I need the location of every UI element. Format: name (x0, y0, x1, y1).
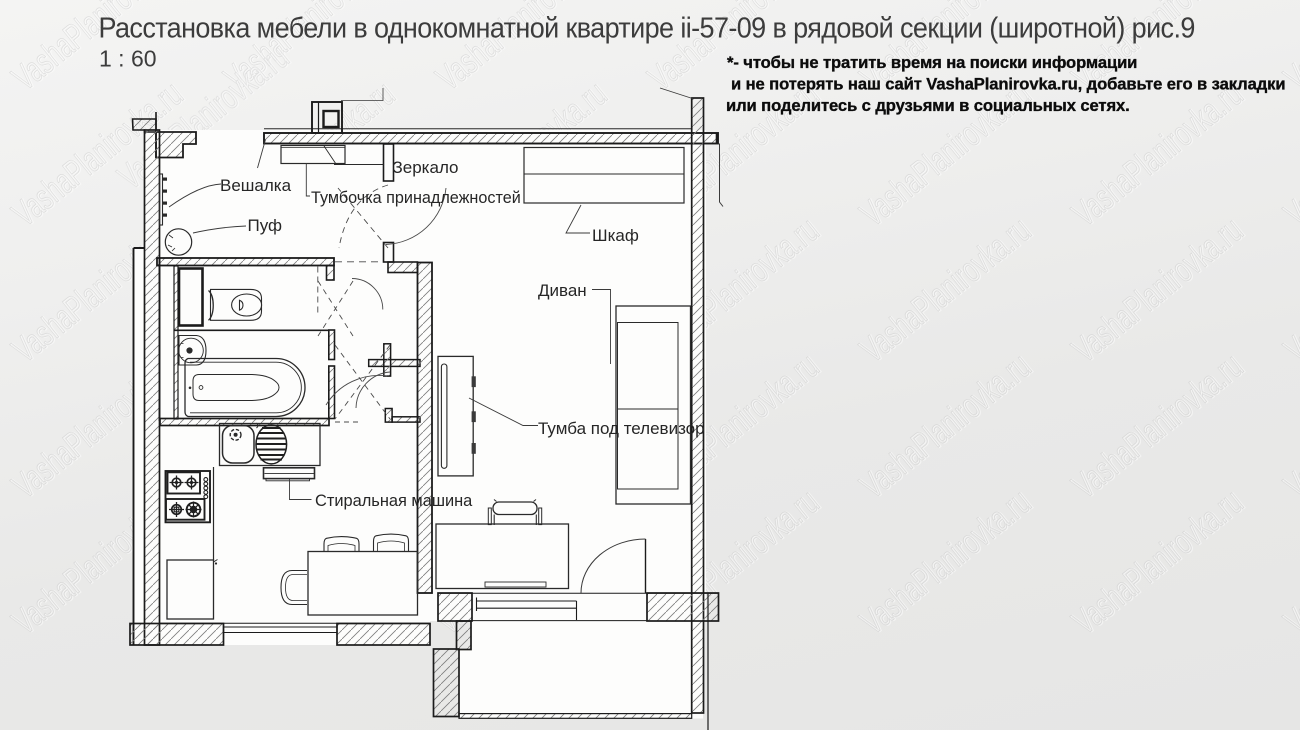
svg-text:Пуф: Пуф (248, 216, 283, 235)
svg-text:Шкаф: Шкаф (592, 226, 639, 245)
svg-text:Расстановка мебели в однокомна: Расстановка мебели в однокомнатной кварт… (99, 12, 1195, 44)
svg-text:или поделитесь с друзьями в со: или поделитесь с друзьями в социальных с… (726, 96, 1130, 115)
svg-text:Диван: Диван (538, 281, 587, 300)
svg-text:Тумба под телевизор: Тумба под телевизор (538, 419, 705, 438)
svg-text:и не потерять наш сайт VashaPl: и не потерять наш сайт VashaPlanirovka.r… (731, 75, 1285, 94)
svg-text:Зеркало: Зеркало (393, 158, 459, 177)
svg-text:Вешалка: Вешалка (220, 176, 292, 195)
svg-text:Стиральная машина: Стиральная машина (315, 492, 473, 510)
svg-text:Тумбочка принадлежностей: Тумбочка принадлежностей (311, 189, 521, 207)
svg-text:1 : 60: 1 : 60 (99, 46, 157, 72)
svg-text:*- чтобы не тратить время на п: *- чтобы не тратить время на поиски инфо… (727, 53, 1137, 72)
